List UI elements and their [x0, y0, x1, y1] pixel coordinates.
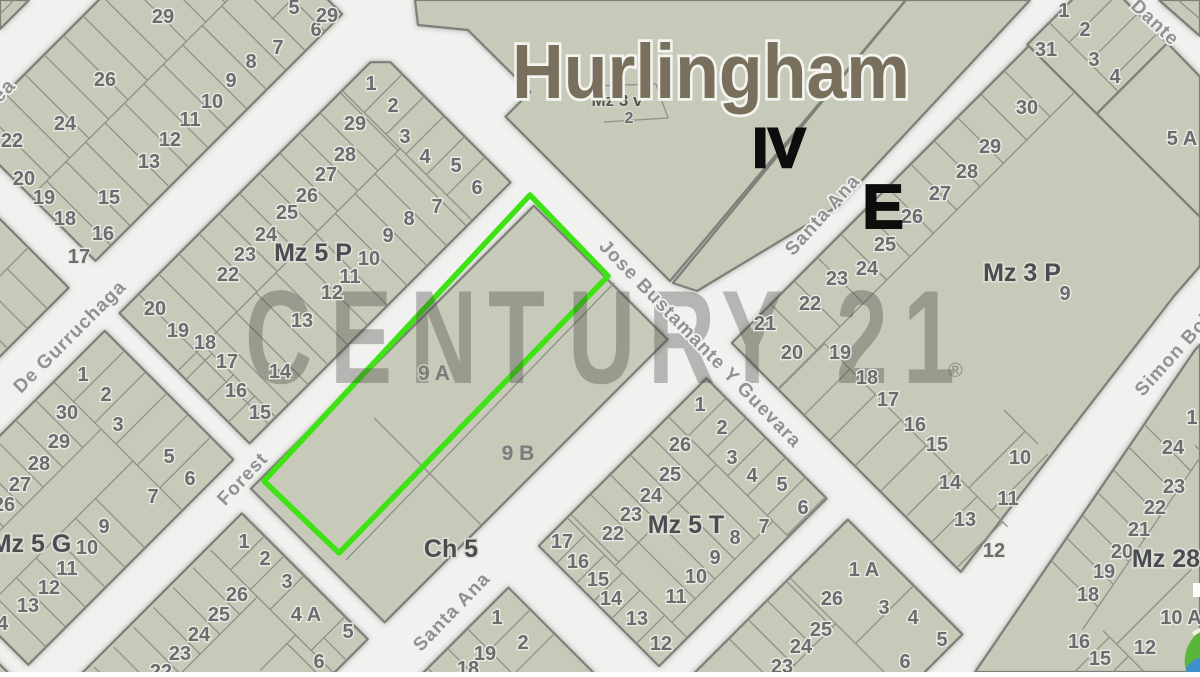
svg-text:12: 12 — [159, 129, 181, 151]
svg-text:5 A: 5 A — [1167, 128, 1197, 150]
svg-text:2: 2 — [387, 95, 398, 117]
svg-text:1: 1 — [1186, 407, 1197, 429]
svg-text:12: 12 — [38, 577, 60, 599]
svg-text:12: 12 — [321, 282, 343, 304]
svg-text:2: 2 — [716, 417, 727, 439]
svg-text:Hurlingham: Hurlingham — [512, 29, 910, 115]
svg-text:25: 25 — [659, 464, 681, 486]
svg-text:5: 5 — [288, 0, 299, 19]
svg-text:17: 17 — [877, 389, 899, 411]
svg-text:1: 1 — [491, 607, 502, 629]
svg-text:1: 1 — [77, 364, 88, 386]
svg-text:24: 24 — [188, 624, 211, 646]
svg-text:6: 6 — [797, 497, 808, 519]
svg-text:19: 19 — [829, 342, 851, 364]
svg-text:22: 22 — [150, 661, 172, 672]
svg-text:22: 22 — [1144, 497, 1166, 519]
svg-text:3: 3 — [112, 414, 123, 436]
svg-text:28: 28 — [334, 144, 356, 166]
svg-text:14: 14 — [600, 588, 623, 610]
svg-text:1 A: 1 A — [849, 559, 879, 581]
svg-text:26: 26 — [296, 185, 318, 207]
svg-text:9: 9 — [225, 70, 236, 92]
svg-text:30: 30 — [56, 402, 78, 424]
svg-text:T: T — [488, 264, 545, 412]
svg-text:16: 16 — [1068, 631, 1090, 653]
svg-text:29: 29 — [979, 136, 1001, 158]
svg-text:13: 13 — [138, 151, 160, 173]
svg-text:10: 10 — [201, 91, 223, 113]
svg-text:18: 18 — [54, 208, 76, 230]
svg-text:19: 19 — [167, 320, 189, 342]
svg-text:13: 13 — [291, 310, 313, 332]
svg-text:24: 24 — [790, 636, 813, 658]
svg-text:10: 10 — [76, 537, 98, 559]
svg-text:26: 26 — [821, 588, 843, 610]
svg-text:5: 5 — [342, 621, 353, 643]
svg-text:N: N — [410, 264, 477, 412]
svg-text:9: 9 — [709, 547, 720, 569]
svg-text:22: 22 — [217, 264, 239, 286]
svg-text:18: 18 — [856, 367, 878, 389]
svg-text:3: 3 — [399, 126, 410, 148]
svg-text:13: 13 — [954, 509, 976, 531]
svg-text:U: U — [568, 264, 635, 412]
svg-text:12: 12 — [983, 540, 1005, 562]
svg-text:10 A: 10 A — [1160, 607, 1200, 629]
svg-text:23: 23 — [1163, 476, 1185, 498]
svg-text:C: C — [245, 264, 312, 412]
svg-text:5: 5 — [450, 155, 461, 177]
svg-text:23: 23 — [234, 244, 256, 266]
svg-text:6: 6 — [184, 468, 195, 490]
svg-text:Mz 5 P: Mz 5 P — [274, 239, 352, 267]
svg-text:7: 7 — [147, 486, 158, 508]
svg-text:22: 22 — [1, 130, 23, 152]
svg-text:9 A: 9 A — [418, 362, 450, 385]
svg-text:5: 5 — [163, 446, 174, 468]
svg-text:3: 3 — [726, 447, 737, 469]
svg-text:9: 9 — [382, 225, 393, 247]
svg-text:8: 8 — [729, 527, 740, 549]
svg-text:10: 10 — [358, 248, 380, 270]
svg-text:3: 3 — [281, 571, 292, 593]
svg-text:9: 9 — [1059, 283, 1070, 305]
svg-text:4: 4 — [746, 465, 758, 487]
svg-text:Mz 28 A: Mz 28 A — [1132, 545, 1200, 573]
svg-text:31: 31 — [1035, 39, 1057, 61]
svg-text:15: 15 — [926, 434, 948, 456]
svg-text:3: 3 — [1088, 49, 1099, 71]
svg-text:28: 28 — [956, 161, 978, 183]
svg-text:6: 6 — [899, 651, 910, 672]
svg-text:25: 25 — [276, 202, 298, 224]
svg-text:10: 10 — [685, 566, 707, 588]
svg-text:11: 11 — [997, 488, 1018, 510]
svg-text:17: 17 — [68, 246, 90, 268]
svg-text:16: 16 — [904, 414, 926, 436]
svg-text:11: 11 — [179, 109, 200, 131]
svg-text:12: 12 — [650, 633, 672, 655]
svg-text:17: 17 — [216, 351, 238, 373]
svg-text:26: 26 — [901, 206, 923, 228]
svg-text:25: 25 — [810, 619, 832, 641]
svg-text:4: 4 — [419, 146, 431, 168]
svg-text:20: 20 — [144, 298, 166, 320]
svg-text:18: 18 — [457, 658, 479, 672]
svg-text:27: 27 — [9, 474, 31, 496]
svg-text:21: 21 — [1128, 519, 1150, 541]
svg-text:2: 2 — [517, 632, 528, 654]
svg-text:Ch 5: Ch 5 — [424, 535, 478, 563]
svg-text:23: 23 — [826, 268, 848, 290]
svg-text:20: 20 — [781, 342, 803, 364]
svg-text:28: 28 — [28, 453, 50, 475]
svg-text:12: 12 — [1134, 637, 1156, 659]
svg-text:19: 19 — [33, 187, 55, 209]
svg-text:17: 17 — [551, 531, 573, 553]
svg-text:1: 1 — [365, 73, 376, 95]
svg-text:15: 15 — [98, 187, 120, 209]
svg-text:4 A: 4 A — [291, 604, 321, 626]
svg-text:5: 5 — [936, 629, 947, 651]
svg-text:10: 10 — [1009, 447, 1031, 469]
svg-text:23: 23 — [169, 643, 191, 665]
svg-text:26: 26 — [94, 69, 116, 91]
svg-text:29: 29 — [316, 5, 338, 27]
svg-text:26: 26 — [226, 584, 248, 606]
svg-text:3: 3 — [878, 597, 889, 619]
svg-text:26: 26 — [0, 494, 15, 516]
svg-text:27: 27 — [929, 183, 951, 205]
svg-text:9 B: 9 B — [502, 442, 535, 465]
svg-text:18: 18 — [1077, 584, 1099, 606]
svg-text:7: 7 — [758, 516, 769, 538]
svg-text:1: 1 — [238, 531, 249, 553]
svg-text:6: 6 — [471, 177, 482, 199]
svg-text:8: 8 — [403, 208, 414, 230]
svg-text:4: 4 — [1109, 66, 1121, 88]
svg-text:14: 14 — [0, 613, 9, 635]
svg-text:29: 29 — [152, 6, 174, 28]
svg-text:25: 25 — [208, 604, 230, 626]
svg-text:27: 27 — [315, 164, 337, 186]
svg-text:9: 9 — [98, 516, 109, 538]
svg-text:16: 16 — [225, 380, 247, 402]
svg-text:30: 30 — [1016, 97, 1038, 119]
svg-text:1: 1 — [903, 264, 955, 412]
svg-text:24: 24 — [640, 485, 663, 507]
svg-text:Mz 3 P: Mz 3 P — [983, 259, 1061, 287]
svg-text:24: 24 — [856, 258, 879, 280]
svg-text:E: E — [862, 173, 903, 242]
svg-text:2: 2 — [259, 548, 270, 570]
svg-text:24: 24 — [1162, 437, 1185, 459]
svg-text:16: 16 — [92, 223, 114, 245]
svg-text:20: 20 — [13, 168, 35, 190]
svg-text:20: 20 — [1111, 541, 1133, 563]
svg-text:2: 2 — [100, 384, 111, 406]
svg-text:Mz 5 G: Mz 5 G — [0, 530, 71, 558]
svg-text:IV: IV — [753, 116, 806, 179]
svg-text:24: 24 — [54, 113, 77, 135]
svg-text:4: 4 — [907, 607, 919, 629]
svg-text:22: 22 — [602, 523, 624, 545]
svg-text:21: 21 — [754, 313, 776, 335]
svg-text:15: 15 — [249, 402, 271, 424]
svg-text:5: 5 — [776, 474, 787, 496]
svg-text:18: 18 — [194, 332, 216, 354]
svg-text:22: 22 — [799, 293, 821, 315]
svg-text:®: ® — [948, 360, 963, 382]
svg-text:14: 14 — [269, 361, 292, 383]
svg-text:14: 14 — [939, 472, 962, 494]
svg-text:Mz 5 T: Mz 5 T — [648, 511, 724, 539]
svg-text:13: 13 — [17, 595, 39, 617]
svg-text:2: 2 — [1079, 19, 1090, 41]
svg-text:15: 15 — [1089, 648, 1111, 670]
svg-text:29: 29 — [344, 113, 366, 135]
svg-text:29: 29 — [48, 431, 70, 453]
svg-text:1: 1 — [1058, 0, 1069, 22]
svg-text:23: 23 — [771, 656, 793, 672]
svg-text:19: 19 — [1093, 561, 1115, 583]
svg-text:6: 6 — [313, 651, 324, 672]
svg-text:1: 1 — [694, 394, 705, 416]
svg-text:7: 7 — [431, 196, 442, 218]
svg-text:8: 8 — [245, 51, 256, 73]
svg-text:26: 26 — [669, 434, 691, 456]
svg-text:11: 11 — [665, 586, 686, 608]
svg-text:7: 7 — [272, 37, 283, 59]
svg-text:13: 13 — [626, 608, 648, 630]
svg-text:16: 16 — [567, 551, 589, 573]
